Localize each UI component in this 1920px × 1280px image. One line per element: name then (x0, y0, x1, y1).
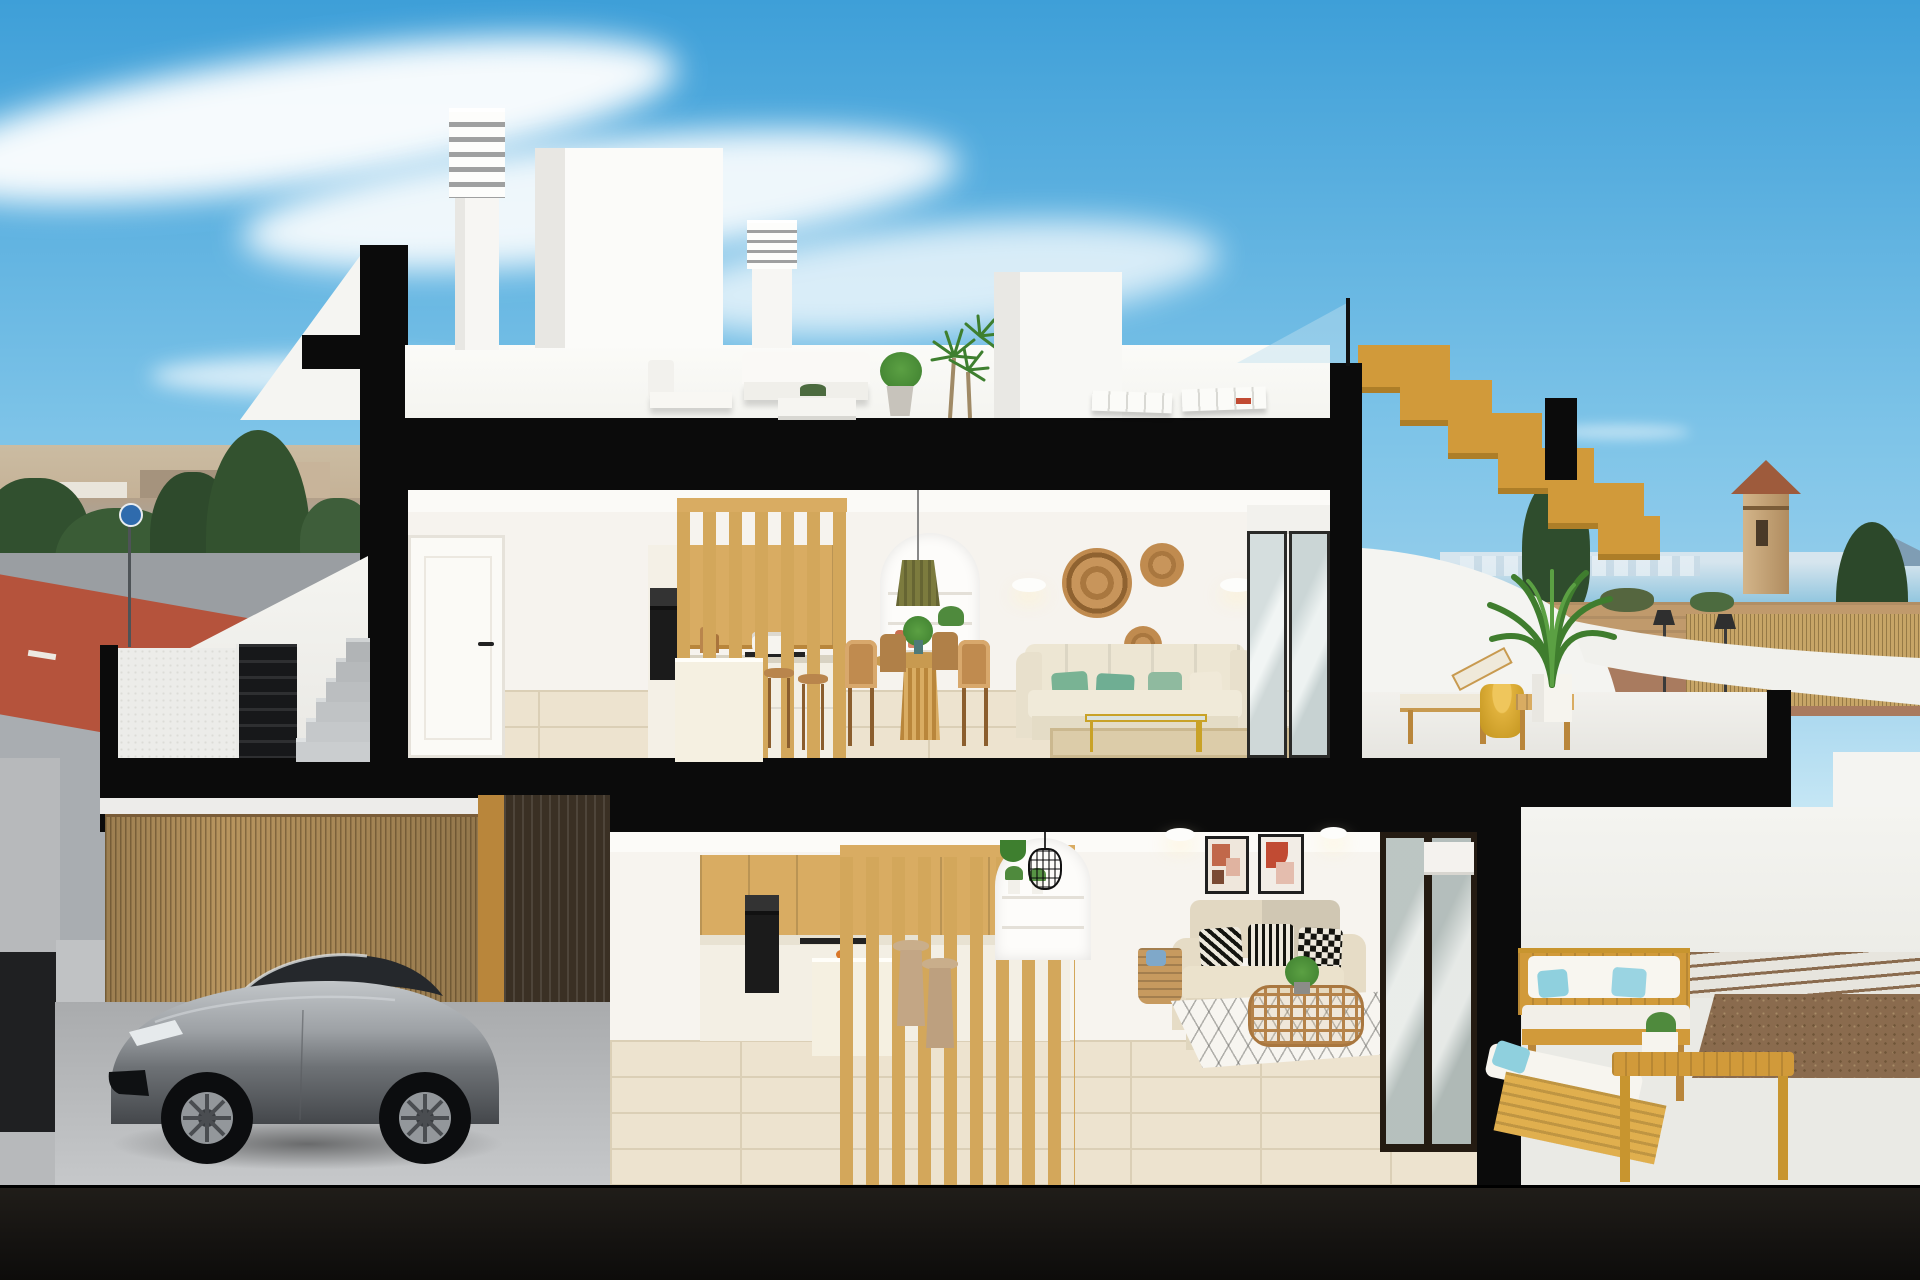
ground-oven (745, 895, 779, 993)
entry-black-gate (236, 644, 297, 758)
paving-strips (1688, 952, 1920, 998)
round-sign (119, 503, 143, 527)
bar-stool-legs (802, 684, 824, 750)
roof-potted-plant (880, 352, 922, 390)
niche-plant-pot (1008, 878, 1020, 894)
bench-table-top (1612, 1052, 1794, 1076)
entry-textured-wall (118, 648, 236, 758)
chair-legs (848, 688, 874, 746)
bar-stool (764, 668, 794, 678)
ground-door-glass (1386, 838, 1424, 1144)
rattan-chair-back (880, 634, 906, 672)
garage-dark-opening (0, 952, 56, 1132)
dracaena-plant (918, 308, 1002, 418)
chimney-stack (455, 190, 499, 350)
bar-stool (798, 674, 828, 684)
architectural-cross-section-scene (0, 0, 1920, 1280)
niche-shelf (1002, 896, 1084, 899)
chimney-stack (752, 262, 792, 348)
olive-pendant-lamp (896, 560, 940, 606)
slat-screen-header (677, 498, 847, 512)
bench-table-planter (1642, 1032, 1678, 1054)
chair-legs (962, 688, 988, 746)
roof-sofa (742, 352, 870, 384)
section-cut-roof-slab (405, 418, 1330, 490)
section-cut-mid-slab-ext (1580, 758, 1791, 807)
sign-pole (128, 515, 131, 647)
ground-terrace-parapet (1521, 807, 1920, 963)
niche-shelf (1002, 926, 1084, 929)
yellow-side-table (1480, 684, 1524, 738)
rattan-chair (958, 640, 990, 688)
flat-sun-lounger (1092, 391, 1173, 414)
pendant-cord (917, 490, 919, 562)
rattan-coffee-table (1248, 985, 1364, 1047)
table-plant-pot (1294, 982, 1310, 994)
sliding-glass-door (1247, 531, 1287, 758)
terrace-lounger-legs (1408, 710, 1486, 744)
art-shape (1212, 870, 1224, 884)
sports-car (95, 880, 515, 1170)
chimney-louver-cap (747, 220, 797, 269)
door-handle (478, 642, 494, 646)
rattan-chair (845, 640, 877, 688)
niche-plant (1005, 866, 1023, 880)
wall-sconce (1165, 828, 1195, 841)
potted-palm (1462, 545, 1642, 690)
chimney-louver-cap (449, 108, 505, 198)
section-cut-terrace-edge (1767, 690, 1791, 760)
rattan-wall-decor (1062, 548, 1132, 618)
door-blind-box (1424, 842, 1474, 875)
rattan-wall-decor (1140, 543, 1184, 587)
hall-door-panel (424, 556, 492, 740)
roof-table-plant (800, 384, 826, 396)
wire-pendant-lamp (1028, 848, 1062, 890)
centerpiece-vase (914, 640, 923, 654)
wall-sconce (1320, 827, 1347, 839)
art-shape (1276, 862, 1294, 884)
niche-plant (938, 606, 964, 626)
section-cut-left-thin (100, 645, 118, 758)
basket-cloth (1146, 950, 1166, 966)
roof-coffee-table (778, 398, 856, 420)
roof-lounge-chair-seat (650, 392, 732, 408)
section-cut-notch (302, 335, 366, 369)
sliding-glass-door (1289, 531, 1330, 758)
ground-door-glass (1432, 838, 1471, 1144)
flat-sun-lounger (1182, 387, 1267, 412)
section-cut-stair-end (1545, 398, 1577, 480)
wire-pendant-cord (1044, 832, 1046, 848)
dining-table-pedestal (900, 668, 940, 740)
hanging-plant (1000, 840, 1026, 862)
art-shape (1226, 858, 1240, 876)
coffee-table-legs (1090, 722, 1202, 752)
bar-stool-legs (768, 678, 790, 748)
red-book (1236, 398, 1251, 404)
kitchen-island-upper (675, 658, 763, 762)
section-cut-right-column-upper (1330, 363, 1362, 758)
stool-body (897, 950, 925, 1026)
bench-table-leg (1620, 1076, 1630, 1182)
rattan-chair-back (932, 632, 958, 670)
patterned-pillow-houndstooth (1199, 927, 1244, 970)
stair-bulkhead (535, 148, 723, 348)
blue-pillow (1537, 969, 1569, 999)
ground-section-band (0, 1185, 1920, 1280)
wall-sconce (1012, 578, 1046, 592)
sliding-door-blind-box (1247, 505, 1330, 534)
patterned-pillow-striped (1248, 924, 1294, 968)
glass-railing-post (1346, 298, 1350, 366)
concrete-step (346, 638, 370, 662)
blue-pillow (1611, 967, 1647, 998)
bench-table-leg (1778, 1076, 1788, 1180)
stool-body (926, 968, 954, 1048)
glass-coffee-table (1085, 714, 1207, 722)
